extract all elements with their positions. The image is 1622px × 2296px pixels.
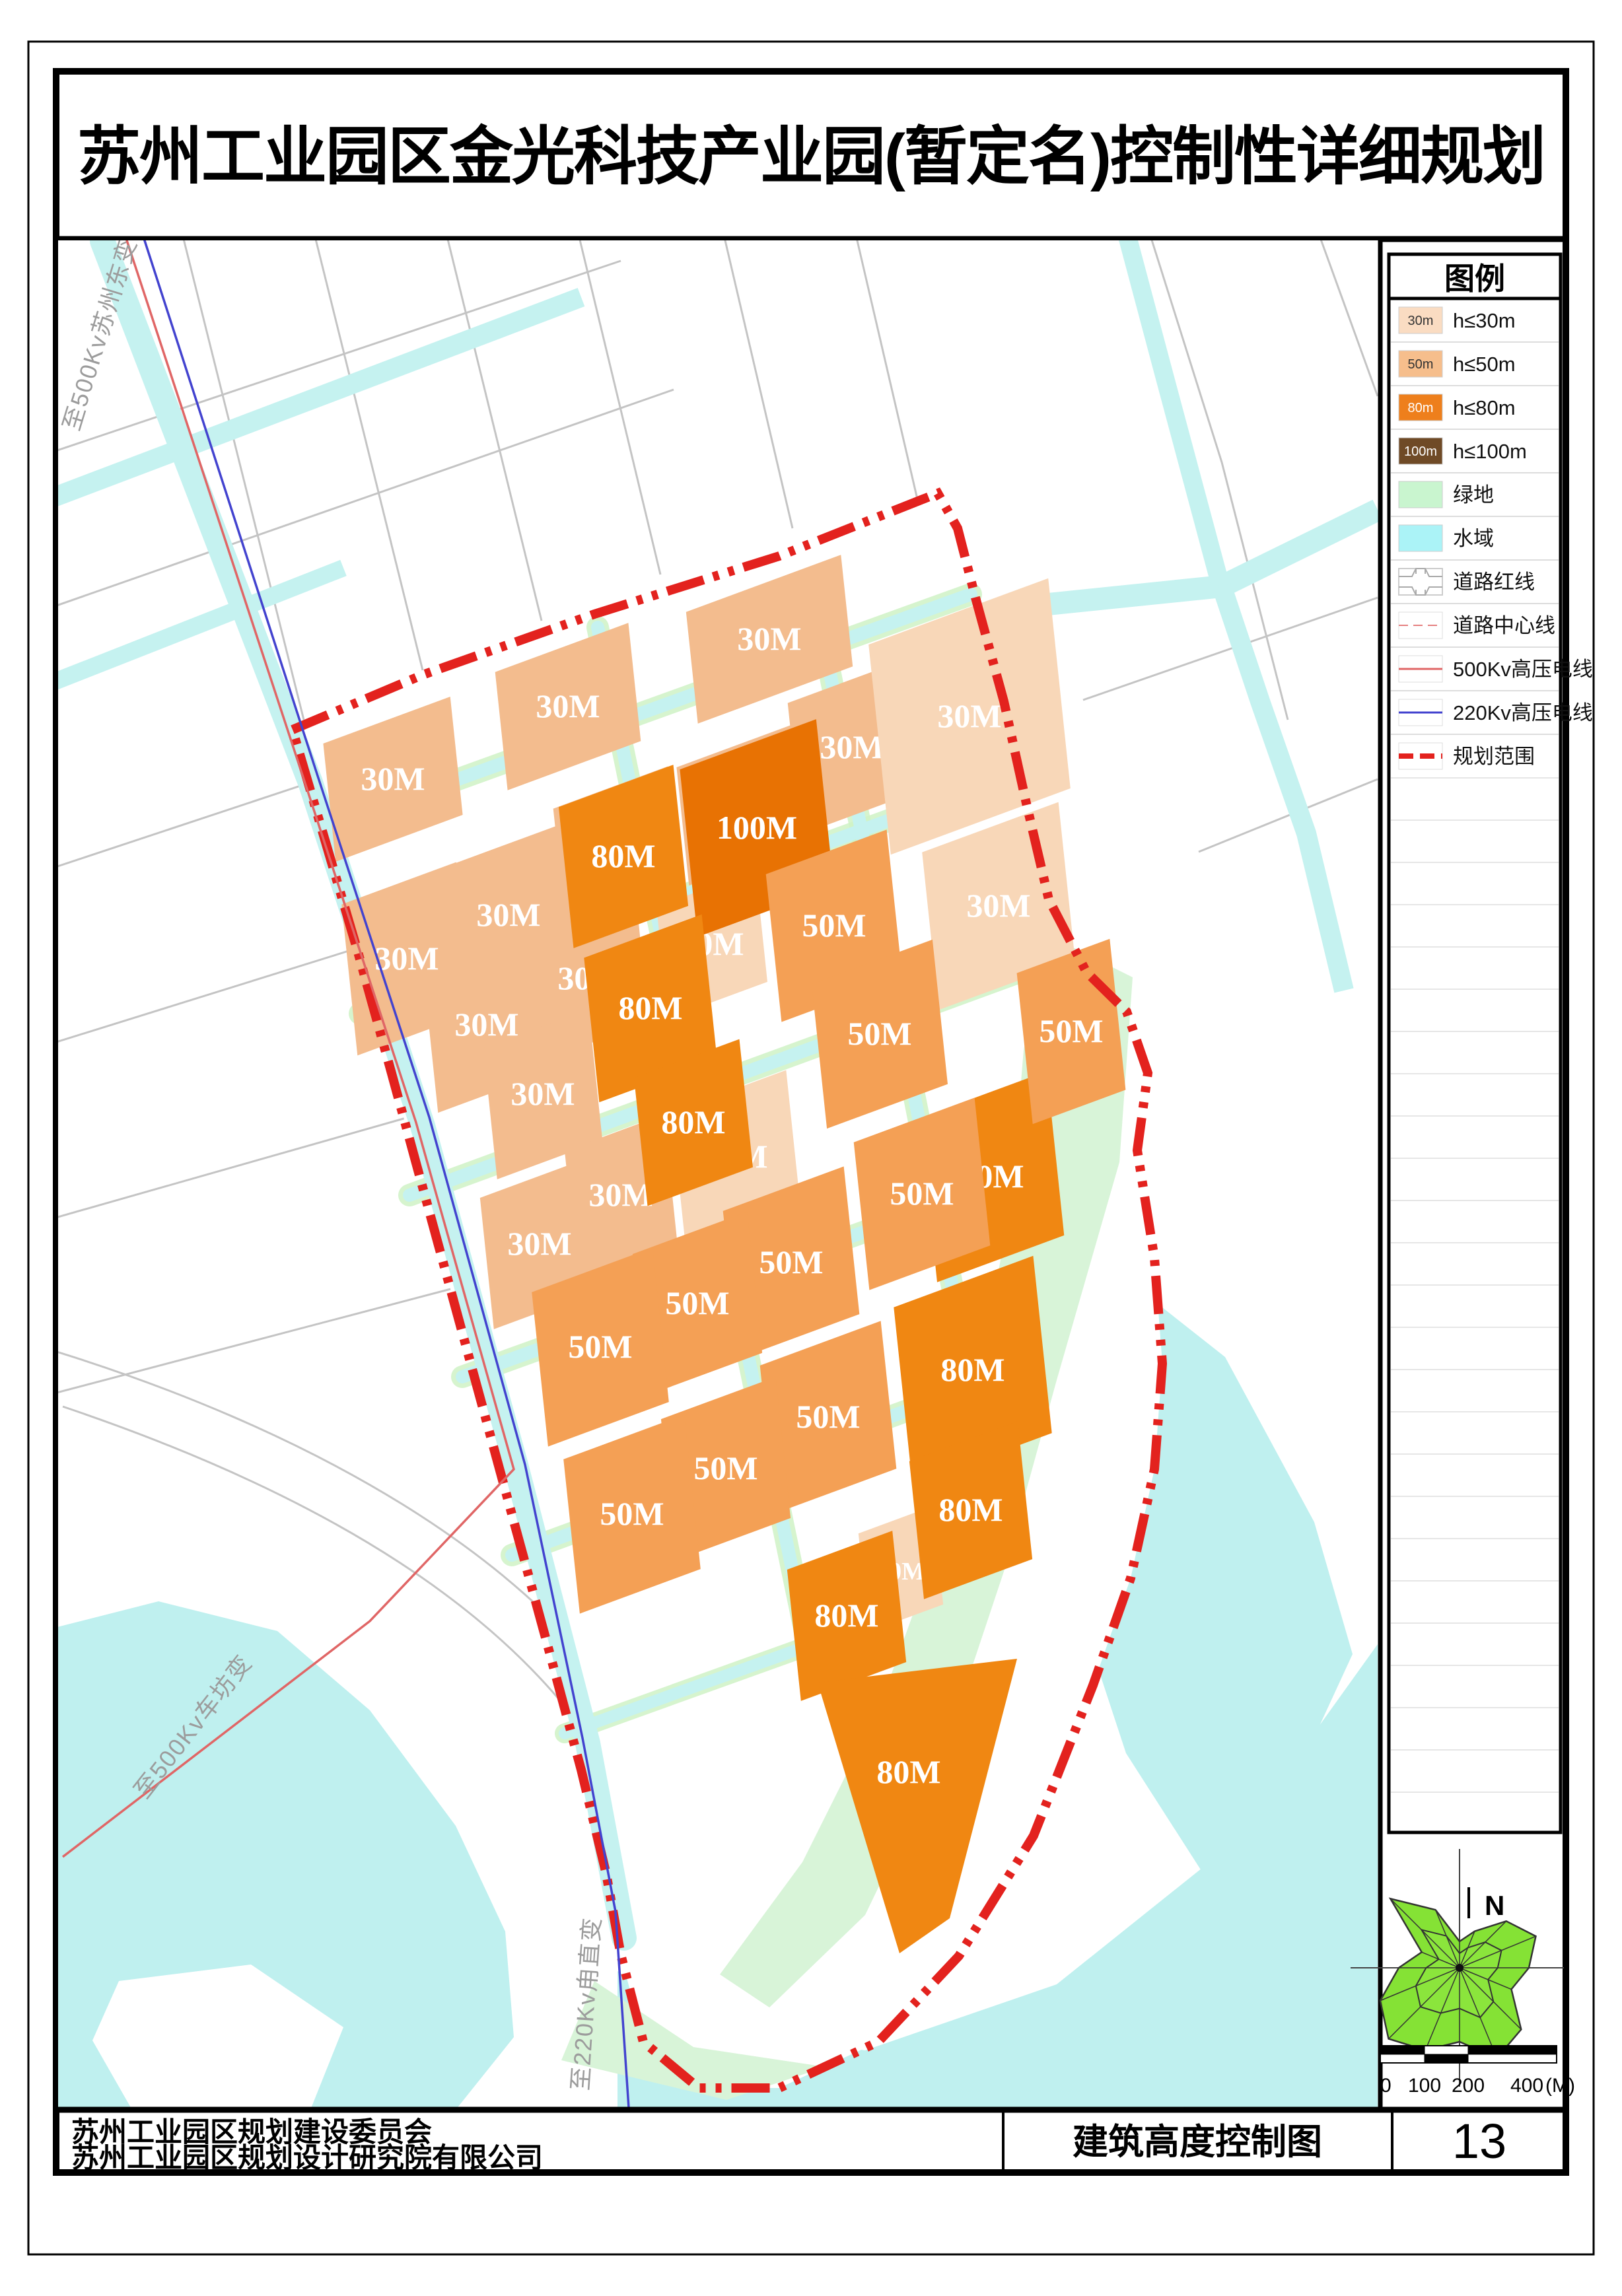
map: 30M30M30M30M30M30M30M30M30M30M30M30M30M3… xyxy=(42,218,1380,2110)
parcel-label: 30M xyxy=(511,1075,575,1112)
svg-text:100m: 100m xyxy=(1404,444,1437,459)
legend-item-label: h≤80m xyxy=(1453,396,1516,419)
parcel-label: 80M xyxy=(938,1491,1003,1528)
parcel-label: 30M xyxy=(536,687,600,724)
parcel-label: 50M xyxy=(1039,1012,1103,1049)
legend-item-label: 道路红线 xyxy=(1453,571,1535,594)
legend-item-label: h≤100m xyxy=(1453,440,1527,463)
parcel-label: 80M xyxy=(661,1103,725,1140)
parcel-label: 30M xyxy=(507,1225,571,1262)
footer: 苏州工业园区规划建设委员会 苏州工业园区规划设计研究院有限公司 建筑高度控制图 … xyxy=(56,2110,1566,2173)
parcel-label: 50M xyxy=(665,1284,729,1321)
parcel-label: 30M xyxy=(588,1176,652,1213)
parcel-label: 50M xyxy=(568,1328,632,1365)
parcel-label: 50M xyxy=(600,1495,664,1532)
legend-item-label: 220Kv高压电线 xyxy=(1453,701,1593,724)
parcel-label: 50M xyxy=(693,1449,758,1486)
parcel-label: 50M xyxy=(759,1243,823,1280)
parcel-label: 80M xyxy=(940,1351,1005,1388)
parcel-label: 30M xyxy=(966,887,1030,924)
legend-item-label: h≤50m xyxy=(1453,353,1516,376)
legend-title: 图例 xyxy=(1444,261,1505,296)
svg-text:30m: 30m xyxy=(1408,314,1434,328)
scale-bar: 0100200400(M) xyxy=(1380,2046,1575,2097)
page-number: 13 xyxy=(1452,2114,1506,2169)
parcel-label: 30M xyxy=(737,620,801,657)
legend-item-label: 500Kv高压电线 xyxy=(1453,658,1593,681)
legend-item: 30mh≤30m xyxy=(1399,307,1516,333)
legend: 图例 30mh≤30m50mh≤50m80mh≤80m100mh≤100m绿地水… xyxy=(1389,254,1593,1832)
scale-tick: 400 xyxy=(1510,2075,1543,2097)
legend-item-label: 规划范围 xyxy=(1453,745,1535,768)
parcel-label: 50M xyxy=(890,1175,954,1212)
drawing-title: 建筑高度控制图 xyxy=(1073,2122,1322,2162)
parcel-label: 30M xyxy=(937,697,1001,734)
scale-unit: (M) xyxy=(1545,2075,1575,2097)
parcel-label: 100M xyxy=(717,809,797,846)
footer-org-2: 苏州工业园区规划设计研究院有限公司 xyxy=(71,2142,543,2173)
legend-swatch xyxy=(1399,481,1442,508)
legend-item-label: 绿地 xyxy=(1453,483,1494,506)
scale-tick: 0 xyxy=(1380,2075,1392,2097)
parcel-label: 50M xyxy=(847,1015,911,1052)
legend-swatch xyxy=(1399,525,1442,551)
plan-sheet: 苏州工业园区金光科技产业园(暂定名)控制性详细规划 xyxy=(0,0,1622,2296)
parcel-label: 50M xyxy=(802,907,866,944)
sheet-canvas: 苏州工业园区金光科技产业园(暂定名)控制性详细规划 xyxy=(0,0,1622,2296)
parcel-label: 50M xyxy=(796,1398,860,1435)
parcel-label: 30M xyxy=(820,728,884,765)
parcel-label: 80M xyxy=(591,837,655,874)
parcel-label: 30M xyxy=(361,760,425,797)
north-label: N xyxy=(1485,1890,1504,1921)
parcel-label: 80M xyxy=(876,1753,940,1790)
parcel-label: 30M xyxy=(454,1006,518,1043)
page-title: 苏州工业园区金光科技产业园(暂定名)控制性详细规划 xyxy=(77,122,1545,192)
parcel-label: 80M xyxy=(814,1597,878,1634)
svg-text:50m: 50m xyxy=(1408,357,1434,372)
scale-tick: 100 xyxy=(1408,2075,1441,2097)
legend-item-label: 水域 xyxy=(1453,527,1494,550)
svg-text:80m: 80m xyxy=(1408,401,1434,415)
parcel-label: 80M xyxy=(618,989,682,1026)
scale-tick: 200 xyxy=(1452,2075,1485,2097)
legend-item-label: h≤30m xyxy=(1453,309,1516,332)
parcel-label: 30M xyxy=(374,940,439,977)
legend-item-label: 道路中心线 xyxy=(1453,614,1555,637)
parcel-label: 30M xyxy=(476,896,540,933)
